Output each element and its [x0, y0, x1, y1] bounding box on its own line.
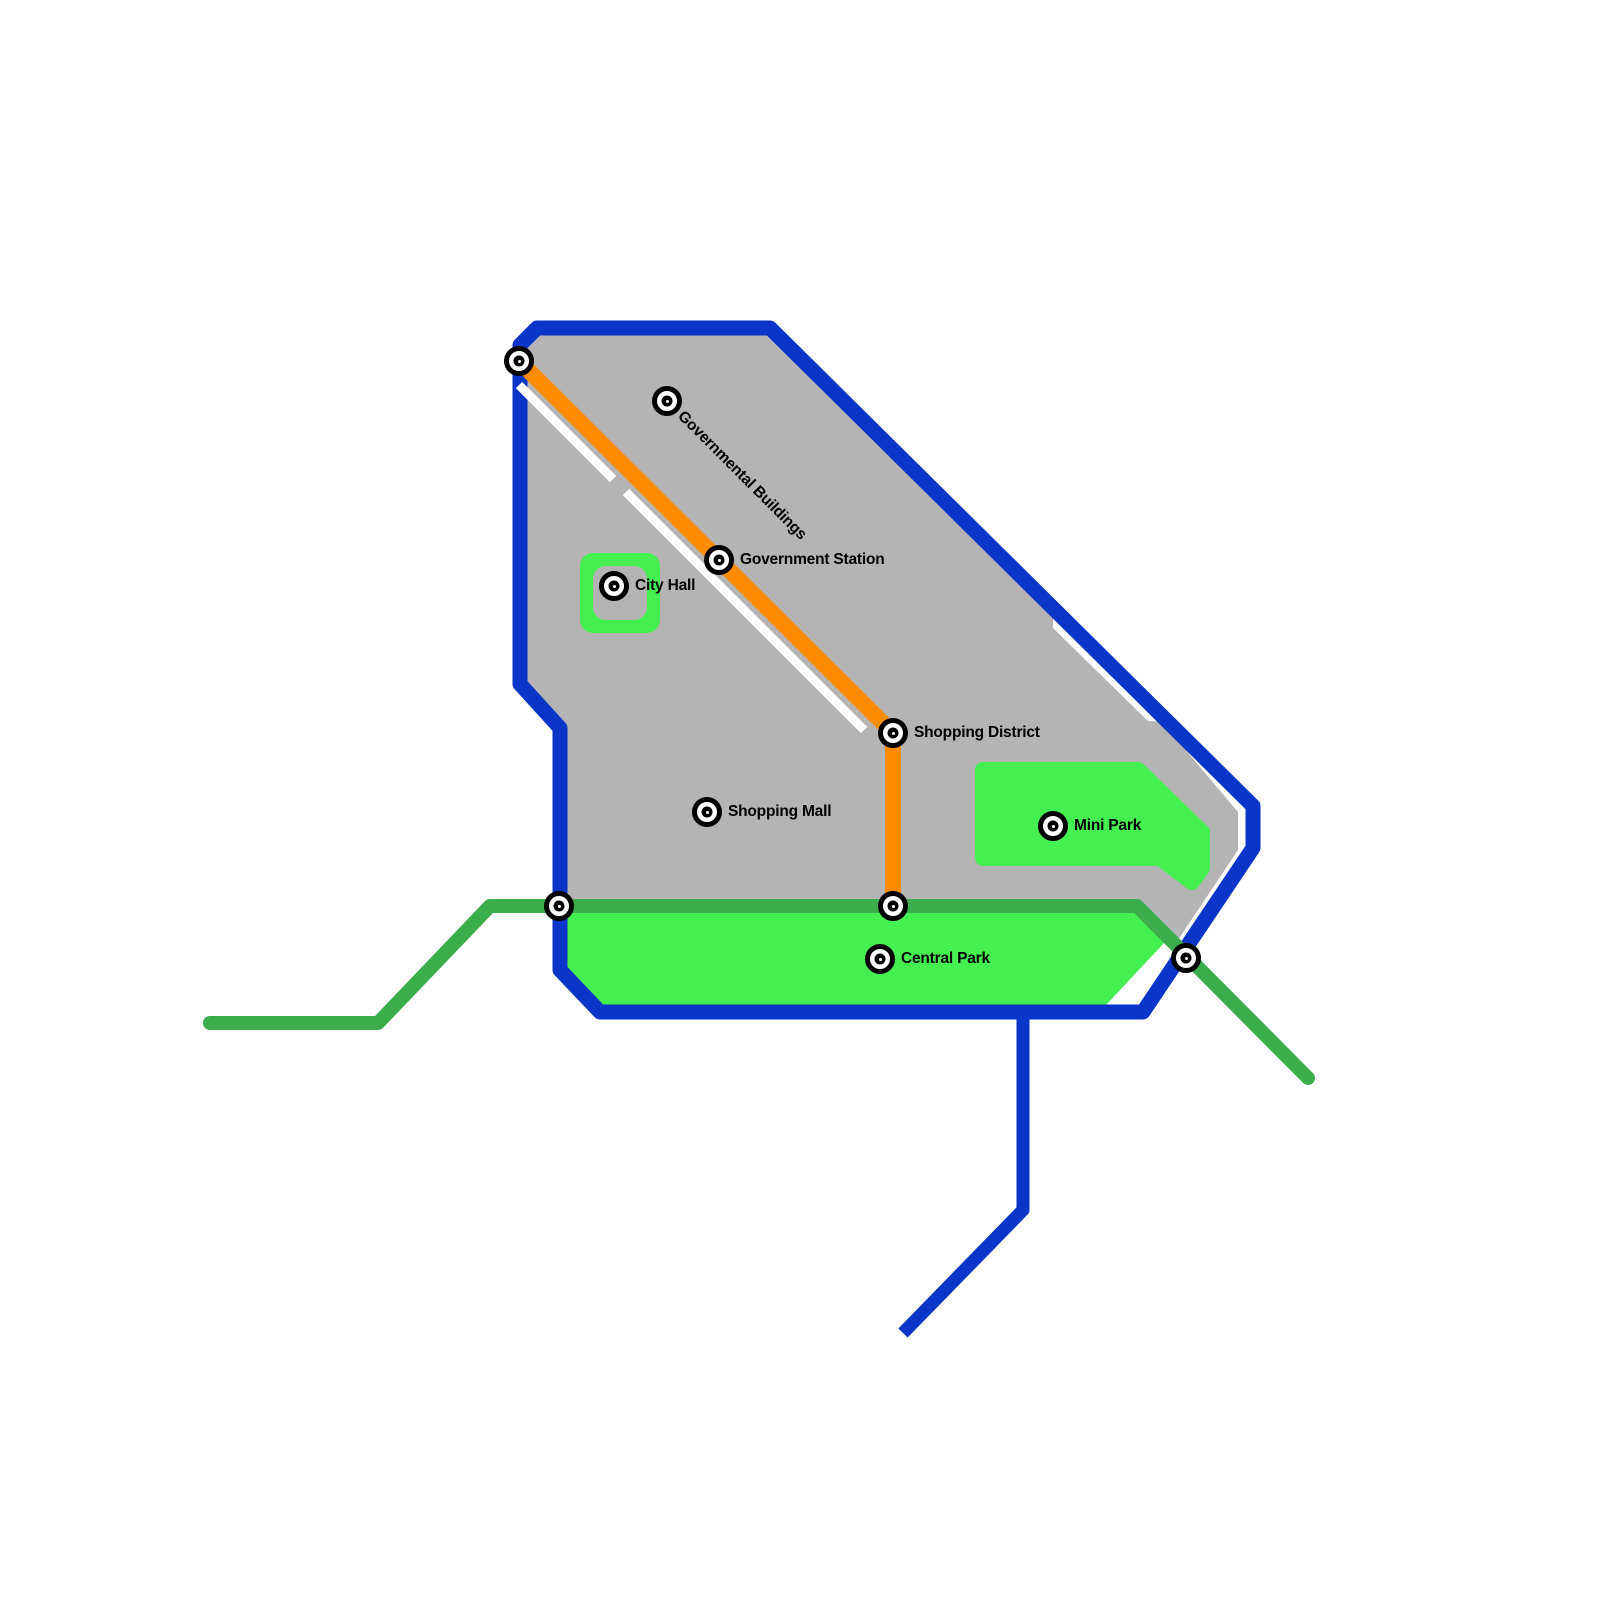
station-pin-icon [718, 559, 721, 562]
station-label-city-hall: City Hall [635, 576, 695, 596]
station-marker-southeast-crossing[interactable] [1171, 943, 1201, 973]
station-marker-shopping-mall[interactable] [692, 797, 722, 827]
station-pin-icon [892, 732, 895, 735]
station-marker-shopping-district[interactable] [878, 718, 908, 748]
station-marker-northwest-terminus[interactable] [504, 346, 534, 376]
station-core-icon [554, 901, 565, 912]
station-core-icon [1181, 953, 1192, 964]
station-core-icon [662, 396, 673, 407]
station-pin-icon [558, 905, 561, 908]
station-label-shopping-district: Shopping District [914, 723, 1040, 743]
station-core-icon [888, 728, 899, 739]
station-marker-city-hall[interactable] [599, 571, 629, 601]
south-rail-spur [903, 1012, 1023, 1333]
station-core-icon [1048, 821, 1059, 832]
station-marker-west-line-crossing[interactable] [544, 891, 574, 921]
station-pin-icon [879, 958, 882, 961]
station-core-icon [714, 555, 725, 566]
station-label-central-park: Central Park [901, 949, 990, 969]
station-core-icon [702, 807, 713, 818]
station-pin-icon [1052, 825, 1055, 828]
station-core-icon [514, 356, 525, 367]
station-pin-icon [613, 585, 616, 588]
station-pin-icon [1185, 957, 1188, 960]
station-pin-icon [666, 400, 669, 403]
station-label-shopping-mall: Shopping Mall [728, 802, 831, 822]
station-marker-government-station[interactable] [704, 545, 734, 575]
station-marker-mini-park[interactable] [1038, 811, 1068, 841]
station-marker-orange-line-junction[interactable] [878, 891, 908, 921]
map-layers [0, 0, 1600, 1600]
station-marker-central-park[interactable] [865, 944, 895, 974]
station-pin-icon [706, 811, 709, 814]
central-park-area [566, 904, 1160, 1002]
station-core-icon [609, 581, 620, 592]
station-label-government-station: Government Station [740, 550, 885, 570]
station-core-icon [875, 954, 886, 965]
city-map-canvas: Governmental BuildingsGovernment Station… [0, 0, 1600, 1600]
station-core-icon [888, 901, 899, 912]
station-pin-icon [892, 905, 895, 908]
station-label-mini-park: Mini Park [1074, 816, 1141, 836]
station-marker-governmental-buildings[interactable] [652, 386, 682, 416]
station-pin-icon [518, 360, 521, 363]
